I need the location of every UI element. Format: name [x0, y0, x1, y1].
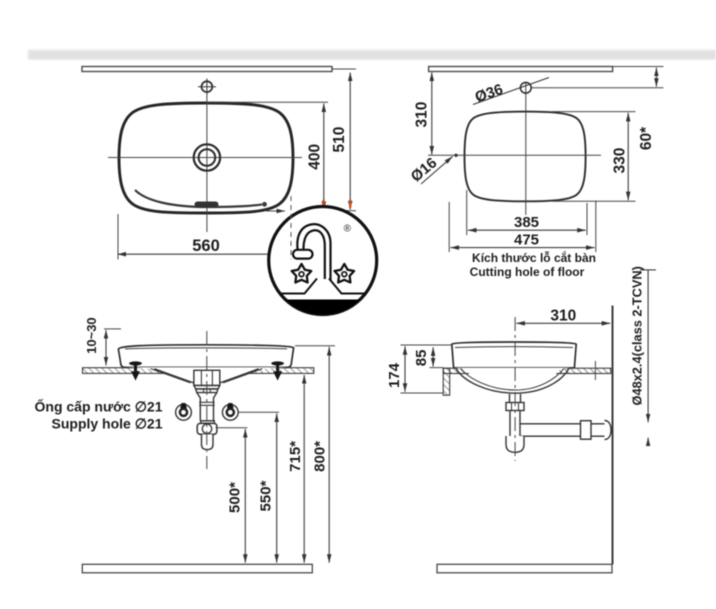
svg-text:85: 85	[413, 350, 430, 367]
svg-text:310: 310	[413, 102, 430, 128]
svg-text:Cutting hole of floor: Cutting hole of floor	[470, 265, 585, 279]
svg-text:Ø36: Ø36	[473, 81, 505, 106]
svg-text:400: 400	[307, 144, 324, 170]
svg-text:510: 510	[331, 127, 348, 153]
svg-text:475: 475	[514, 231, 539, 248]
svg-text:10~30: 10~30	[84, 317, 99, 354]
svg-text:Kích thước lỗ cắt bàn: Kích thước lỗ cắt bàn	[472, 250, 596, 265]
svg-text:Ø16: Ø16	[408, 154, 441, 185]
svg-text:330: 330	[612, 148, 629, 174]
svg-text:385: 385	[514, 214, 539, 231]
svg-text:560: 560	[192, 237, 220, 255]
svg-text:®: ®	[344, 224, 352, 235]
svg-text:Supply hole ∅21: Supply hole ∅21	[52, 415, 163, 431]
svg-text:715*: 715*	[287, 441, 304, 472]
svg-text:800*: 800*	[311, 441, 328, 472]
svg-text:60*: 60*	[638, 126, 655, 150]
svg-text:550*: 550*	[257, 480, 274, 511]
svg-text:500*: 500*	[226, 482, 243, 513]
svg-text:Ø48x2.4(class 2-TCVN): Ø48x2.4(class 2-TCVN)	[630, 266, 645, 405]
svg-text:174: 174	[386, 362, 403, 388]
svg-text:Ống cấp nước ∅21: Ống cấp nước ∅21	[35, 397, 163, 414]
svg-text:310: 310	[550, 308, 576, 325]
